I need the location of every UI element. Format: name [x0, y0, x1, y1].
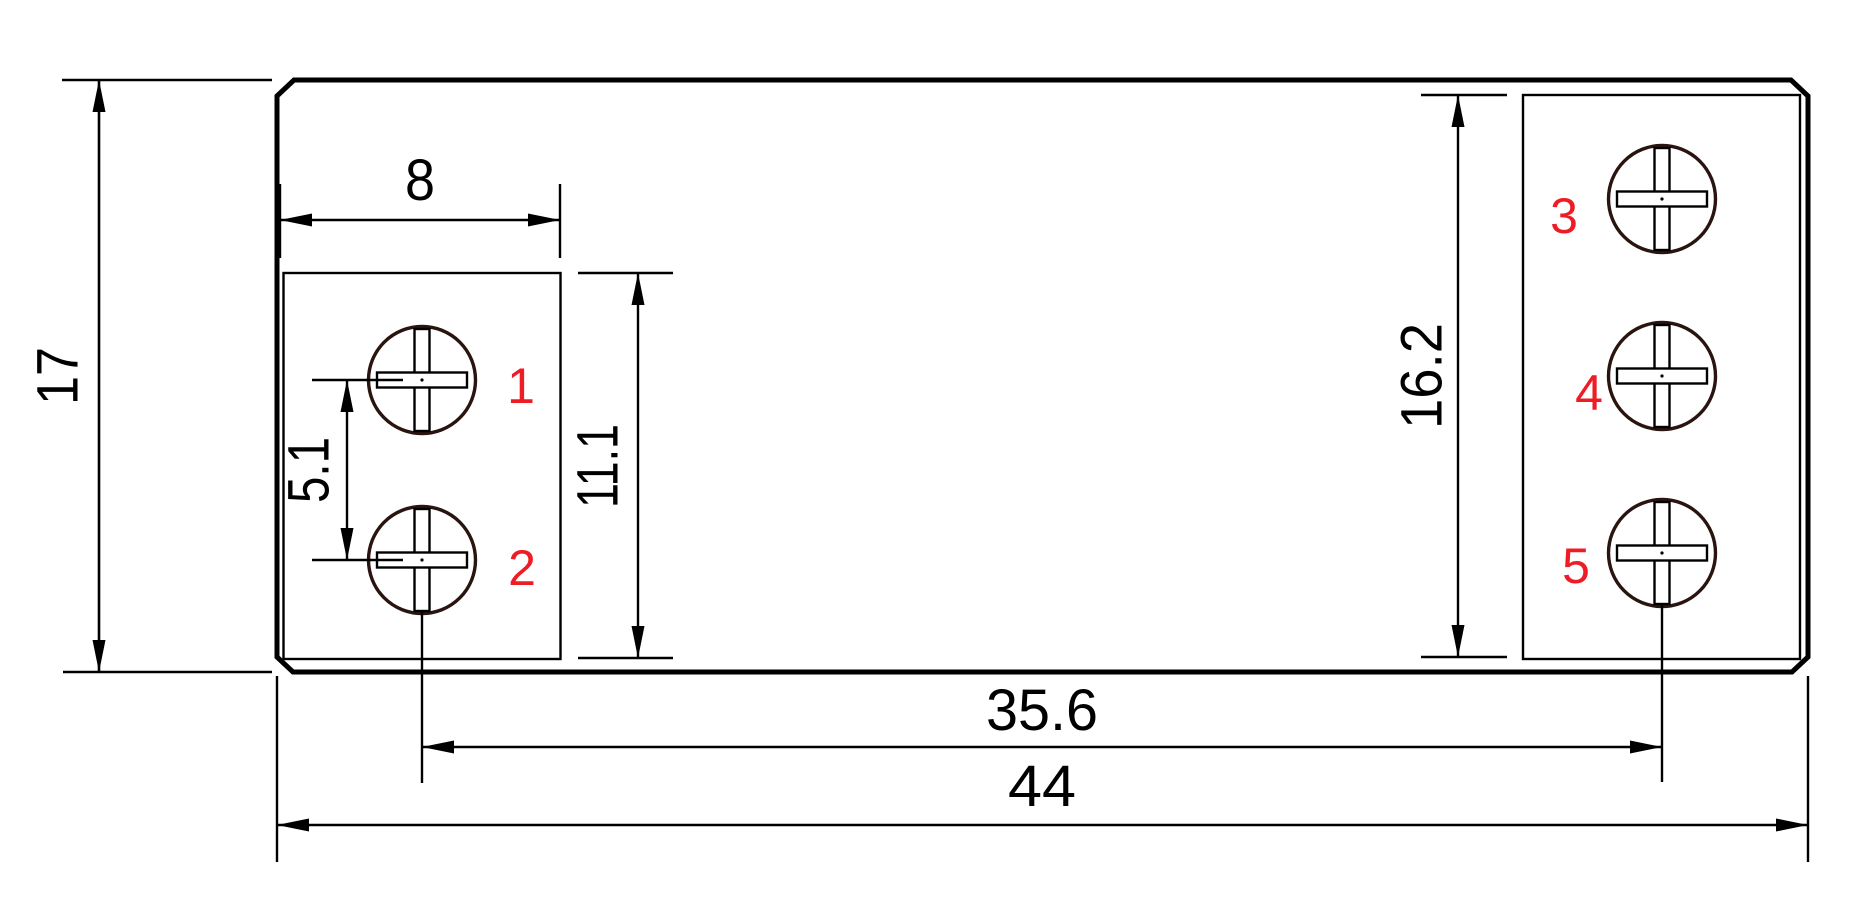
screw-terminal-3: [1609, 146, 1716, 253]
arrowhead: [1452, 95, 1465, 127]
arrowhead: [93, 640, 106, 672]
dimension-label: 8: [405, 148, 435, 213]
drawing-canvas: 17 8 5.1 11.1 16.2: [0, 0, 1866, 901]
dimension-overall-height: 17: [26, 80, 272, 672]
terminal-label-5: 5: [1562, 538, 1590, 594]
arrowhead: [341, 528, 354, 560]
dimension-left-block-height: 11.1: [566, 273, 673, 658]
dimension-label: 16.2: [1390, 323, 1455, 429]
dimension-label: 44: [1008, 754, 1076, 819]
dimension-right-block-height: 16.2: [1390, 95, 1507, 657]
screw-center-dot: [1660, 197, 1663, 200]
dimension-label: 5.1: [277, 437, 342, 503]
dimension-label: 17: [26, 347, 91, 405]
dimension-label: 35.6: [986, 678, 1098, 743]
arrowhead: [93, 80, 106, 112]
arrowhead: [632, 273, 645, 305]
dimension-left-block-width: 8: [280, 148, 560, 258]
terminal-label-3: 3: [1550, 188, 1578, 244]
screw-center-dot: [420, 558, 423, 561]
screw-center-dot: [420, 378, 423, 381]
terminal-label-2: 2: [508, 540, 536, 596]
terminal-label-4: 4: [1575, 365, 1603, 421]
screw-center-dot: [1660, 551, 1663, 554]
dimension-left-pitch: 5.1: [277, 380, 403, 560]
screw-center-dot: [1660, 374, 1663, 377]
arrowhead: [1452, 625, 1465, 657]
arrowhead: [632, 626, 645, 658]
dimension-label: 11.1: [566, 424, 631, 508]
arrowhead: [277, 819, 309, 832]
screw-terminal-4: [1609, 323, 1716, 430]
screw-terminal-5: [1609, 500, 1716, 607]
arrowhead: [1630, 741, 1662, 754]
terminal-label-1: 1: [507, 358, 535, 414]
drawing-sheet: 17 8 5.1 11.1 16.2: [0, 0, 1866, 901]
arrowhead: [528, 214, 560, 227]
arrowhead: [280, 214, 312, 227]
arrowhead: [341, 380, 354, 412]
arrowhead: [1776, 819, 1808, 832]
arrowhead: [422, 741, 454, 754]
